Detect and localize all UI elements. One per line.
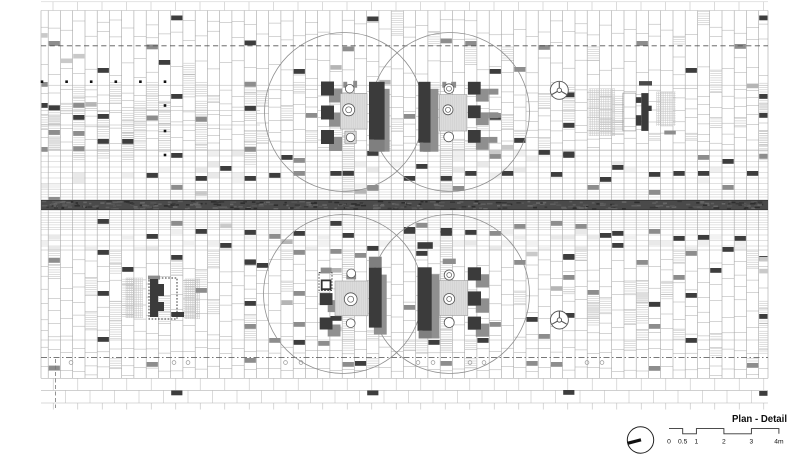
svg-text:2: 2 [722,439,726,446]
svg-text:Plan - Detail: Plan - Detail [732,413,787,425]
svg-text:0: 0 [667,439,671,446]
svg-text:0.5: 0.5 [678,439,688,446]
svg-text:3: 3 [750,439,754,446]
svg-text:1: 1 [695,439,699,446]
svg-text:4m: 4m [774,439,784,446]
